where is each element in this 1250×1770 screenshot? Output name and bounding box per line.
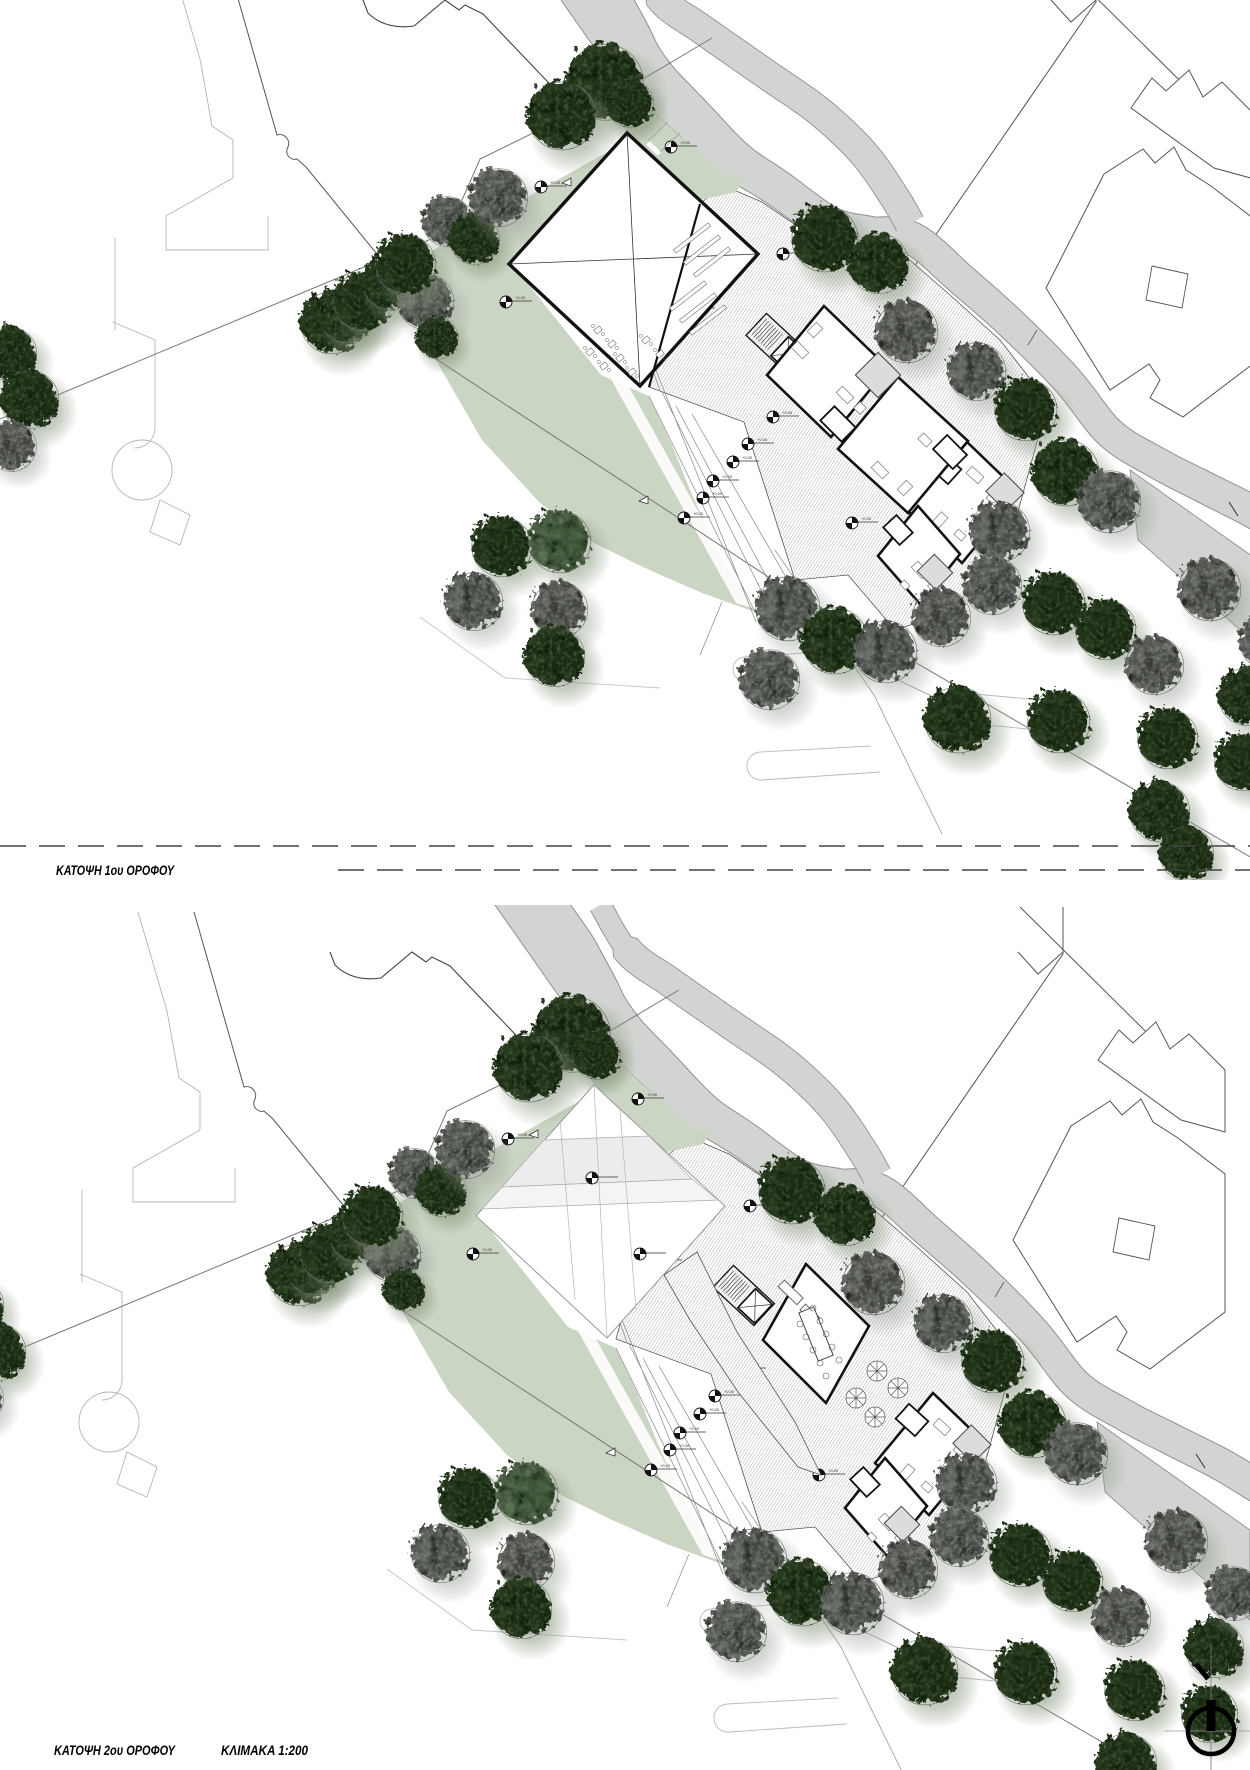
svg-text:+0.00: +0.00	[722, 474, 733, 479]
svg-text:ΚΛΙΜΑΚΑ 1:200: ΚΛΙΜΑΚΑ 1:200	[221, 1742, 308, 1758]
svg-text:+0.00: +0.00	[861, 516, 872, 521]
svg-text:+0.00: +0.00	[693, 511, 704, 516]
svg-text:+0.00: +0.00	[712, 491, 723, 496]
svg-text:+0.00: +0.00	[680, 140, 691, 145]
svg-text:+0.00: +0.00	[742, 455, 753, 460]
svg-text:ΚΑΤΟΨΗ 1ου ΟΡΟΦΟΥ: ΚΑΤΟΨΗ 1ου ΟΡΟΦΟΥ	[56, 862, 175, 878]
svg-text:+0.00: +0.00	[550, 180, 561, 185]
svg-text:+0.00: +0.00	[515, 295, 526, 300]
svg-text:ΚΑΤΟΨΗ 2ου ΟΡΟΦΟΥ: ΚΑΤΟΨΗ 2ου ΟΡΟΦΟΥ	[54, 1742, 176, 1758]
svg-text:+0.00: +0.00	[782, 410, 793, 415]
svg-text:+0.00: +0.00	[757, 437, 768, 442]
